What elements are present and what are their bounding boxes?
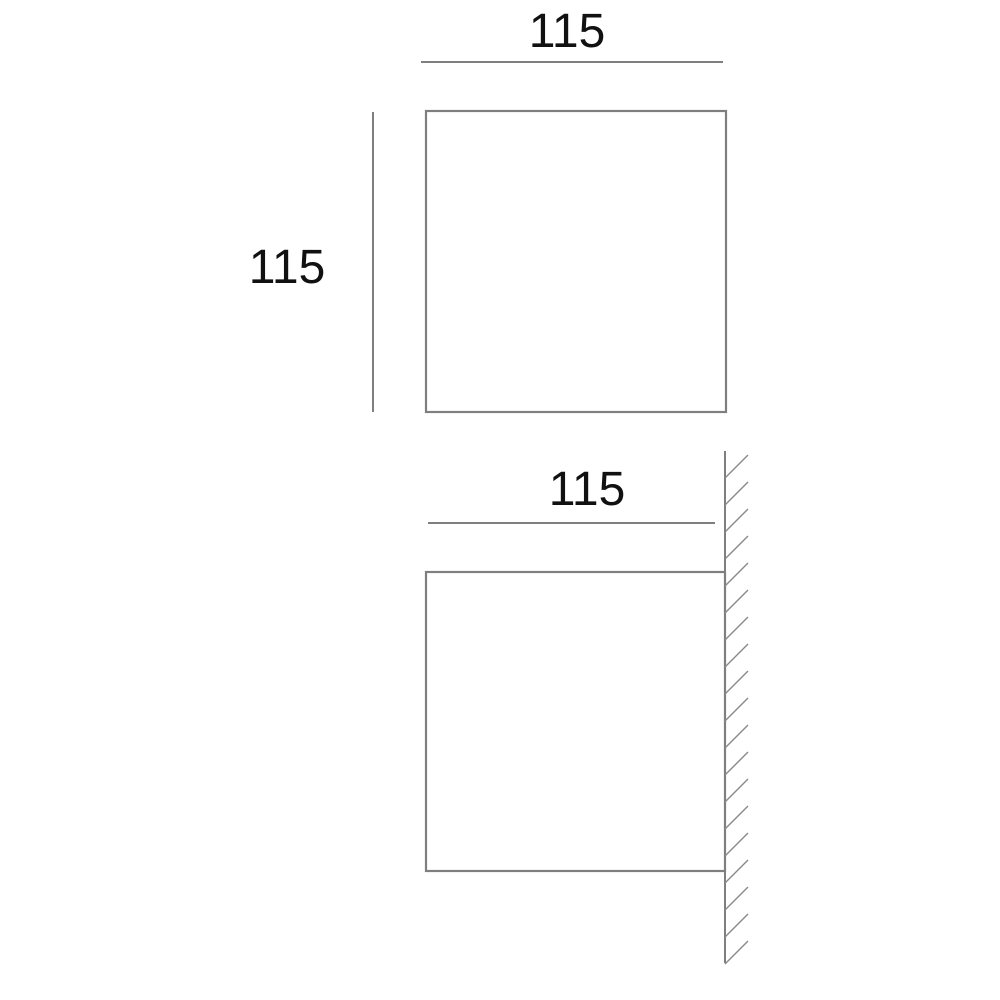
wall-hatch-line <box>725 806 748 829</box>
wall-hatch-line <box>725 590 748 613</box>
dimension-diagram: 115 115 115 <box>0 0 1000 1000</box>
wall-hatching <box>725 455 748 964</box>
wall-hatch-line <box>725 779 748 802</box>
wall-hatch-line <box>725 887 748 910</box>
dimension-drawing-page: 115 115 115 <box>0 0 1000 1000</box>
front-view-width-label: 115 <box>529 5 606 58</box>
front-view: 115 115 <box>249 5 726 412</box>
wall-hatch-line <box>725 671 748 694</box>
wall-hatch-line <box>725 563 748 586</box>
side-view-outline <box>426 572 725 871</box>
wall-hatch-line <box>725 455 748 478</box>
wall-hatch-line <box>725 698 748 721</box>
wall-hatch-line <box>725 860 748 883</box>
wall-hatch-line <box>725 644 748 667</box>
side-view-width-label: 115 <box>549 463 626 516</box>
wall-hatch-line <box>725 509 748 532</box>
front-view-height-label: 115 <box>249 241 326 294</box>
front-view-outline <box>426 111 726 412</box>
side-view: 115 <box>426 451 748 964</box>
wall-hatch-line <box>725 617 748 640</box>
wall-hatch-line <box>725 752 748 775</box>
wall-hatch-line <box>725 833 748 856</box>
wall-hatch-line <box>725 914 748 937</box>
wall-hatch-line <box>725 482 748 505</box>
wall-hatch-line <box>725 941 748 964</box>
wall-hatch-line <box>725 725 748 748</box>
wall-hatch-line <box>725 536 748 559</box>
